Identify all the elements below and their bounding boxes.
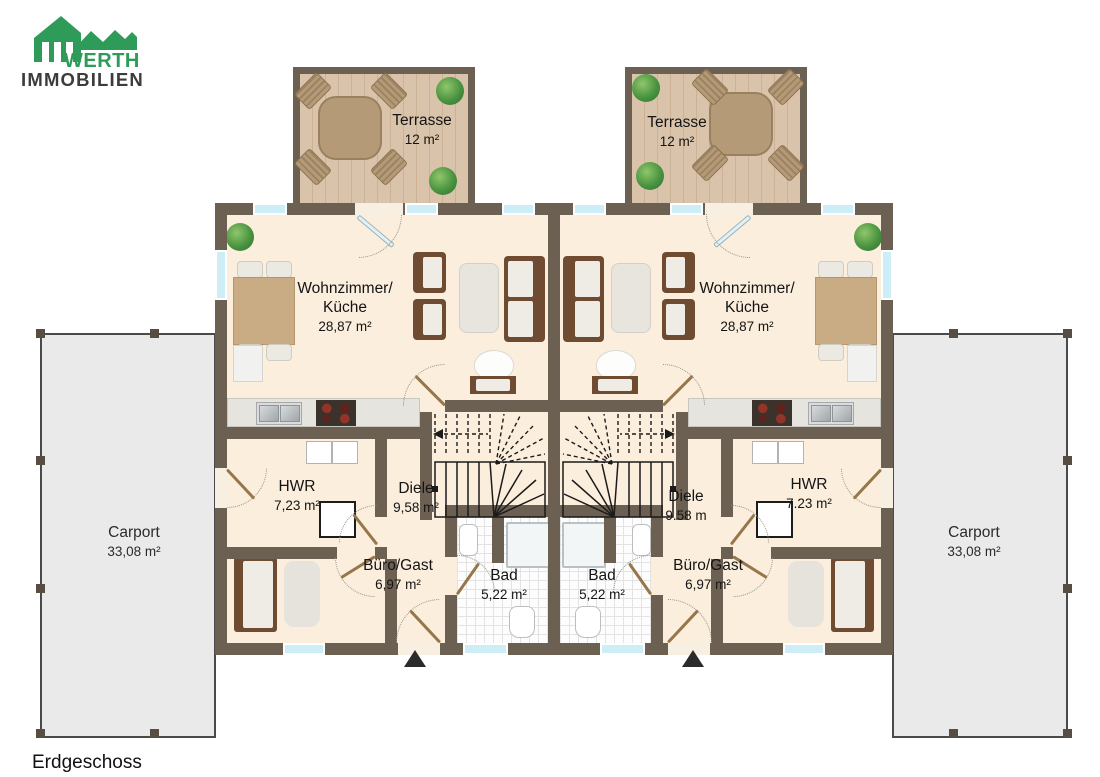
- room-label-bad-right: Bad 5,22 m²: [579, 567, 625, 603]
- room-name: Terrasse: [392, 112, 451, 131]
- door-opening: [705, 203, 753, 215]
- room-area: 9.58 m: [665, 507, 706, 525]
- room-area: 12 m²: [392, 131, 451, 149]
- plant-icon: [436, 77, 464, 105]
- window: [573, 203, 606, 215]
- dining-chair: [266, 261, 292, 278]
- window: [502, 203, 535, 215]
- carport-post: [1063, 456, 1072, 465]
- entrance-arrow-icon: [404, 650, 426, 667]
- window: [821, 203, 855, 215]
- tv-screen: [598, 379, 632, 391]
- wall-segment: [492, 517, 504, 563]
- toilet: [575, 606, 601, 638]
- window: [670, 203, 703, 215]
- sink-basin: [280, 405, 300, 422]
- wall-segment: [604, 517, 616, 563]
- plant-icon: [854, 223, 882, 251]
- cushion: [508, 261, 533, 297]
- carport-post: [36, 456, 45, 465]
- room-area: 7.23 m²: [786, 495, 832, 513]
- carport-post: [36, 729, 45, 738]
- door-opening: [881, 468, 893, 508]
- carport-post: [1063, 729, 1072, 738]
- mattress: [243, 561, 273, 628]
- tv-stand: [592, 376, 638, 394]
- cushion: [575, 261, 600, 297]
- room-area: 5,22 m²: [579, 586, 625, 604]
- room-area: 5,22 m²: [481, 586, 527, 604]
- plant-icon: [429, 167, 457, 195]
- rug: [788, 561, 824, 627]
- room-name: Küche: [297, 299, 392, 318]
- wall-segment: [560, 400, 663, 412]
- carport-post: [1063, 329, 1072, 338]
- dining-chair: [237, 261, 263, 278]
- floor-plan: WERTH IMMOBILIEN: [0, 0, 1100, 777]
- dining-table: [233, 277, 295, 345]
- room-label-terrasse-left: Terrasse 12 m²: [392, 112, 451, 148]
- room-name: Carport: [107, 524, 160, 543]
- room-label-carport-left: Carport 33,08 m²: [107, 524, 160, 560]
- wall-segment: [651, 595, 663, 643]
- room-name: Bad: [579, 567, 625, 586]
- cushion: [666, 304, 685, 335]
- room-label-carport-right: Carport 33,08 m²: [947, 524, 1000, 560]
- dryer: [778, 441, 804, 464]
- room-label-living-left: Wohnzimmer/ Küche 28,87 m²: [297, 280, 392, 335]
- wall-segment: [445, 595, 457, 643]
- window: [215, 250, 227, 300]
- cushion: [423, 257, 442, 288]
- room-label-buero-left: Büro/Gast 6,97 m²: [363, 557, 433, 593]
- wall-segment: [227, 427, 420, 439]
- cushion: [508, 301, 533, 337]
- plant-icon: [632, 74, 660, 102]
- bath-sink: [632, 524, 651, 556]
- kitchen-sink: [808, 402, 854, 425]
- shower: [562, 522, 606, 568]
- armchair: [413, 252, 446, 293]
- room-area: 28,87 m²: [297, 318, 392, 336]
- kitchen-sink: [256, 402, 302, 425]
- room-name: HWR: [274, 478, 320, 497]
- washer: [752, 441, 778, 464]
- cushion: [575, 301, 600, 337]
- wall-segment: [227, 547, 337, 559]
- plant-icon: [226, 223, 254, 251]
- wall-segment: [688, 427, 881, 439]
- logo: WERTH IMMOBILIEN: [0, 0, 200, 95]
- dining-table: [815, 277, 877, 345]
- room-name: HWR: [786, 476, 832, 495]
- staircase: [560, 412, 676, 520]
- sink-basin: [811, 405, 831, 422]
- carport-post: [36, 584, 45, 593]
- wall-segment: [445, 400, 548, 412]
- brand-subtitle: IMMOBILIEN: [21, 69, 144, 91]
- shower: [506, 522, 550, 568]
- room-area: 28,87 m²: [699, 318, 794, 336]
- window: [463, 643, 508, 655]
- carport-post: [1063, 584, 1072, 593]
- tv-stand: [470, 376, 516, 394]
- sofa: [504, 256, 545, 342]
- rug: [284, 561, 320, 627]
- carport-post: [949, 729, 958, 738]
- coffee-table: [459, 263, 499, 333]
- room-area: 7,23 m²: [274, 497, 320, 515]
- carport-post: [150, 329, 159, 338]
- room-name: Bad: [481, 567, 527, 586]
- room-area: 33,08 m²: [947, 543, 1000, 561]
- room-name: Carport: [947, 524, 1000, 543]
- room-name: Terrasse: [647, 114, 706, 133]
- window: [600, 643, 645, 655]
- floor-title: Erdgeschoss: [32, 752, 142, 774]
- room-label-hwr-right: HWR 7.23 m²: [786, 476, 832, 512]
- door-opening: [215, 468, 227, 508]
- armchair: [662, 252, 695, 293]
- room-label-hwr-left: HWR 7,23 m²: [274, 478, 320, 514]
- terrace-table: [709, 92, 773, 156]
- stove-cooktop: [752, 400, 792, 426]
- dining-chair: [847, 261, 873, 278]
- window: [783, 643, 825, 655]
- room-label-bad-left: Bad 5,22 m²: [481, 567, 527, 603]
- room-label-living-right: Wohnzimmer/ Küche 28,87 m²: [699, 280, 794, 335]
- staircase: [432, 412, 548, 520]
- room-label-buero-right: Büro/Gast 6,97 m²: [673, 557, 743, 593]
- toilet: [509, 606, 535, 638]
- dryer: [332, 441, 358, 464]
- room-label-diele-right: Diele 9.58 m: [665, 488, 706, 524]
- room-area: 33,08 m²: [107, 543, 160, 561]
- room-name: Wohnzimmer/: [297, 280, 392, 299]
- room-name: Wohnzimmer/: [699, 280, 794, 299]
- sink-basin: [259, 405, 279, 422]
- room-area: 12 m²: [647, 133, 706, 151]
- cushion: [423, 304, 442, 335]
- stove-cooktop: [316, 400, 356, 426]
- mattress: [835, 561, 865, 628]
- window: [405, 203, 438, 215]
- room-area: 6,97 m²: [673, 576, 743, 594]
- bath-sink: [459, 524, 478, 556]
- room-name: Diele: [393, 480, 439, 499]
- dining-chair: [266, 344, 292, 361]
- window: [881, 250, 893, 300]
- room-name: Büro/Gast: [363, 557, 433, 576]
- sink-basin: [832, 405, 852, 422]
- room-area: 6,97 m²: [363, 576, 433, 594]
- room-label-diele-left: Diele 9,58 m²: [393, 480, 439, 516]
- armchair: [662, 299, 695, 340]
- tall-cabinet: [233, 345, 263, 382]
- window: [253, 203, 287, 215]
- dining-chair: [818, 344, 844, 361]
- window: [283, 643, 325, 655]
- armchair: [413, 299, 446, 340]
- wall-segment: [771, 547, 881, 559]
- carport-post: [150, 729, 159, 738]
- room-label-terrasse-right: Terrasse 12 m²: [647, 114, 706, 150]
- washer: [306, 441, 332, 464]
- coffee-table: [611, 263, 651, 333]
- sofa: [563, 256, 604, 342]
- terrace-table: [318, 96, 382, 160]
- entrance-arrow-icon: [682, 650, 704, 667]
- guest-bed: [234, 557, 277, 632]
- carport-post: [36, 329, 45, 338]
- carport-post: [949, 329, 958, 338]
- cushion: [666, 257, 685, 288]
- room-name: Diele: [665, 488, 706, 507]
- dining-chair: [818, 261, 844, 278]
- tall-cabinet: [847, 345, 877, 382]
- room-name: Küche: [699, 299, 794, 318]
- room-name: Büro/Gast: [673, 557, 743, 576]
- guest-bed: [831, 557, 874, 632]
- plant-icon: [636, 162, 664, 190]
- door-opening: [355, 203, 403, 215]
- room-area: 9,58 m²: [393, 499, 439, 517]
- tv-screen: [476, 379, 510, 391]
- party-wall: [548, 203, 560, 655]
